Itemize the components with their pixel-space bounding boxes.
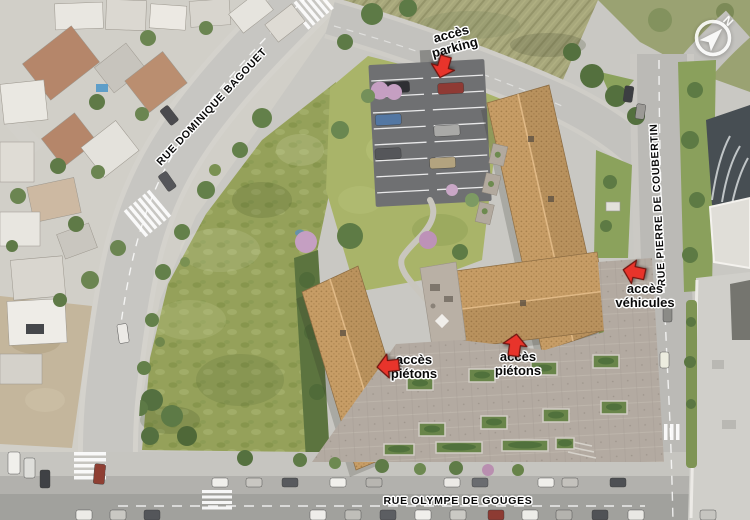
aerial-site-plan: N RUE DOMINIQUE BAGOUET RUE PIERRE DE CO… — [0, 0, 750, 520]
access-pietons-west-arrow-icon — [375, 352, 402, 380]
bus-shelter — [606, 202, 620, 211]
street-label-rue-olympe-de-gouges: RUE OLYMPE DE GOUGES — [384, 495, 533, 507]
swimming-pool — [96, 84, 108, 92]
access-vehicules-label: accès véhicules — [615, 282, 674, 310]
white-building — [710, 198, 750, 268]
access-pietons-east-line2: piétons — [495, 363, 541, 378]
compass-north-indicator: N — [686, 4, 742, 62]
parking-asphalt — [368, 59, 491, 207]
access-pietons-west-line1: accès — [396, 352, 432, 367]
access-pietons-east-arrow-icon — [500, 331, 529, 358]
access-vehicules-line2: véhicules — [615, 295, 674, 310]
